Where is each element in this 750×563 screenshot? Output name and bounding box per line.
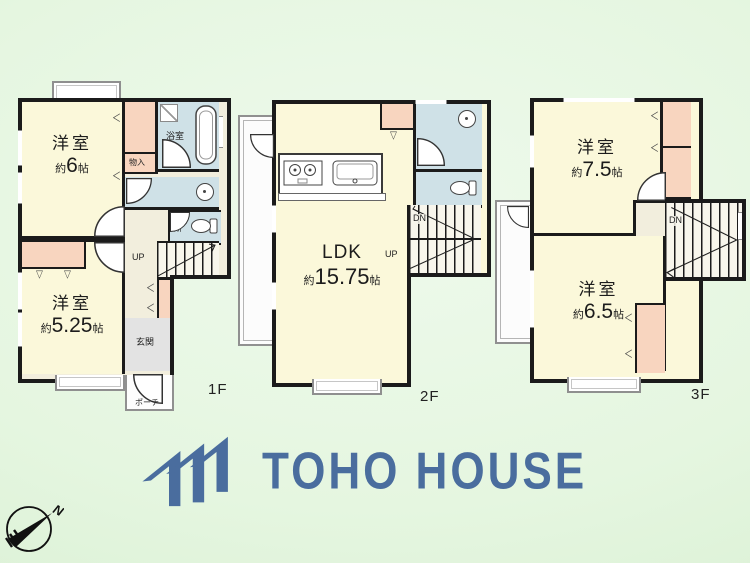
- closet: [663, 102, 691, 148]
- company-logo-text: TOHO HOUSE: [262, 441, 587, 501]
- entrance-genkan: 玄関: [125, 318, 170, 371]
- room-size-unit: 帖: [92, 323, 103, 335]
- kitchen-sink-icon: [332, 160, 378, 186]
- closet: [22, 242, 86, 269]
- building-cutout: [407, 273, 491, 387]
- closet-fold-icon: ＜: [650, 111, 659, 122]
- window: [530, 135, 534, 168]
- room-size-value: 7.5: [582, 158, 611, 181]
- window: [563, 98, 635, 102]
- floorplan-1f: 洋室 約6帖 ＜ ＜ 物入 浴室: [18, 81, 230, 413]
- storage-monoire: 物入: [125, 154, 158, 174]
- room-label: LDK 約15.75帖: [276, 242, 408, 289]
- room-size: 約15.75帖: [276, 264, 408, 289]
- closet-fold-icon: ▽: [390, 130, 397, 141]
- room-label: 洋室 約5.25帖: [22, 294, 122, 338]
- toilet-room: [413, 172, 482, 208]
- stairs-dn-label: DN: [668, 216, 683, 226]
- stairs-3f: DN: [665, 199, 746, 281]
- building-cutout: [170, 275, 231, 383]
- room-size-unit: 帖: [370, 275, 381, 287]
- room-size-value: 5.25: [52, 314, 93, 337]
- room-name: LDK: [276, 242, 408, 264]
- stove-icon: [283, 160, 323, 186]
- stairs-dn-label: DN: [412, 214, 427, 224]
- floorplan-2f-body: ▽ DN UP: [272, 100, 491, 387]
- room-name: 洋室: [534, 138, 660, 158]
- room-name: 洋室: [22, 134, 122, 154]
- closet-fold-icon: ＜: [112, 113, 121, 124]
- door-swing-icon: [250, 134, 274, 158]
- compass-north-icon: N: [2, 498, 64, 560]
- closet-fold-icon: ＜: [650, 143, 659, 154]
- room-size-value: 6: [66, 154, 78, 177]
- closet-fold-icon: ＜: [624, 349, 633, 360]
- closet-fold-icon: ▽: [36, 269, 43, 280]
- sink-icon: [196, 183, 214, 201]
- storage-label: 物入: [129, 159, 145, 168]
- closet-fold-icon: ＜: [112, 171, 121, 182]
- window: [272, 205, 276, 233]
- window: [18, 272, 22, 310]
- door-swing-icon: [126, 178, 152, 204]
- window: [18, 130, 22, 166]
- closet-fold-icon: ＜: [146, 283, 155, 294]
- room-size-prefix: 約: [573, 309, 584, 321]
- bay-window: [55, 375, 125, 391]
- door-swing-icon: [94, 242, 125, 273]
- window: [18, 172, 22, 204]
- counter-edge: [278, 193, 386, 201]
- window: [738, 212, 742, 240]
- stairs-up-label: UP: [132, 253, 145, 263]
- room-size-value: 6.5: [584, 300, 613, 323]
- door-swing-icon: [162, 139, 191, 168]
- porch: ポーチ: [125, 375, 174, 411]
- porch-label: ポーチ: [135, 399, 159, 408]
- room-size-unit: 帖: [612, 167, 623, 179]
- bathtub-icon: [195, 105, 217, 165]
- closet-fold-icon: ＜: [624, 313, 633, 324]
- bay-window: [312, 379, 382, 395]
- room-name: 洋室: [22, 294, 122, 314]
- closet: [380, 104, 415, 130]
- stairs-direction-line: [157, 243, 219, 277]
- room-size-prefix: 約: [571, 167, 582, 179]
- window: [18, 312, 22, 347]
- door-swing-icon: [94, 206, 125, 237]
- floorplan-3f: 洋室 約7.5帖 ＜ ＜ ＜ 洋室 約6.5帖 ＜ ＜: [495, 98, 747, 400]
- kitchen-counter: [278, 153, 383, 195]
- door-swing-icon: [637, 172, 666, 201]
- door-swing-icon: [417, 138, 445, 166]
- room-name: 洋室: [534, 280, 663, 300]
- room-size-prefix: 約: [55, 163, 66, 175]
- room-size-value: 15.75: [314, 264, 369, 289]
- floorplan-1f-body: 洋室 約6帖 ＜ ＜ 物入 浴室: [18, 98, 231, 383]
- room-size-prefix: 約: [41, 323, 52, 335]
- closet: [663, 148, 691, 200]
- closet-fold-icon: ▽: [64, 269, 71, 280]
- bay-window: [567, 377, 641, 393]
- floorplan-canvas: 洋室 約6帖 ＜ ＜ 物入 浴室: [0, 0, 750, 563]
- entrance-label: 玄関: [136, 338, 154, 348]
- floor-label-2f: 2F: [420, 388, 440, 405]
- sink-icon: [458, 110, 476, 128]
- door-swing-icon: [507, 206, 529, 228]
- floor-label-3f: 3F: [691, 386, 711, 403]
- room-size: 約6帖: [22, 154, 122, 178]
- room-size-prefix: 約: [303, 275, 314, 287]
- room-size-unit: 帖: [78, 163, 89, 175]
- floor-label-1f: 1F: [208, 381, 228, 398]
- window: [415, 100, 447, 104]
- window: [219, 116, 223, 148]
- toilet-icon: [448, 178, 478, 198]
- door-swing-icon: [170, 212, 190, 232]
- floorplan-2f: ▽ DN UP: [238, 98, 488, 400]
- window: [530, 270, 534, 328]
- closet-fold-icon: ＜: [146, 303, 155, 314]
- room-label: 洋室 約6帖: [22, 134, 122, 178]
- company-logo: TOHO HOUSE: [140, 430, 594, 512]
- window: [272, 282, 276, 310]
- toho-house-logo-mark-icon: [140, 433, 236, 509]
- room-size: 約5.25帖: [22, 314, 122, 338]
- toilet-icon: [189, 216, 219, 236]
- washer-pan-icon: [160, 104, 178, 122]
- closet: [125, 102, 158, 154]
- closet: [635, 303, 665, 373]
- room-size-unit: 帖: [613, 309, 624, 321]
- compass-north-label: N: [51, 501, 64, 519]
